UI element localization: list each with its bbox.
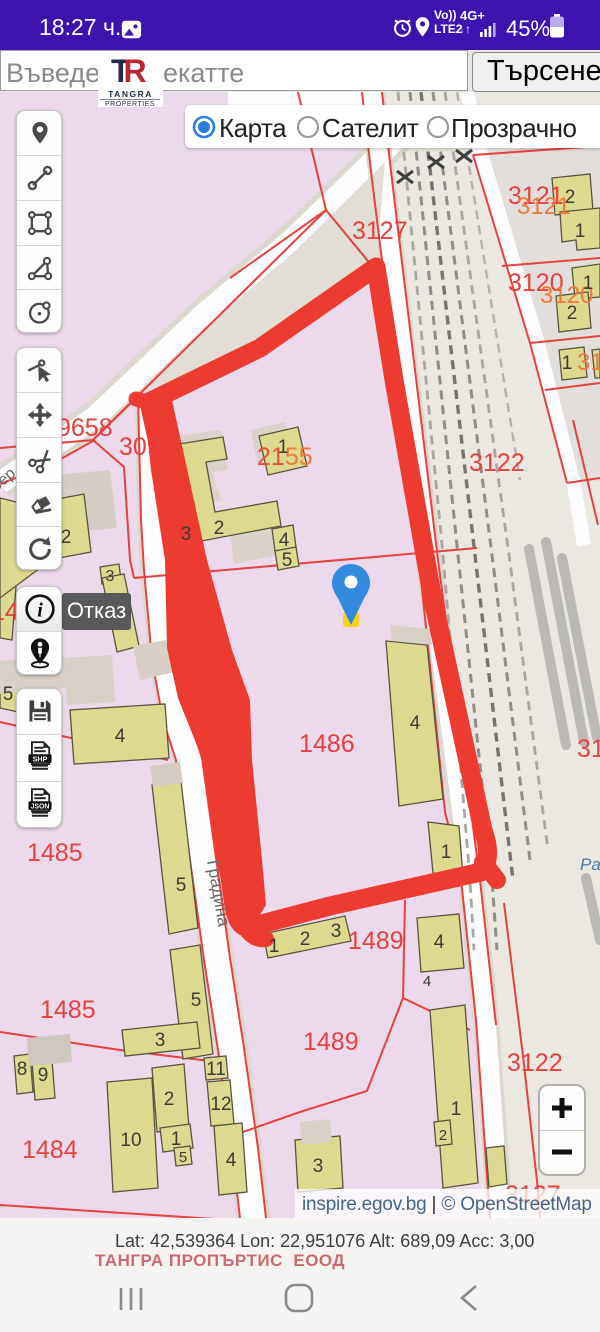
svg-text:1: 1 [278,437,289,458]
svg-text:12: 12 [210,1094,231,1115]
svg-text:9658: 9658 [57,414,113,442]
svg-text:2: 2 [439,1127,447,1144]
svg-text:1484: 1484 [22,1136,78,1164]
svg-text:1485: 1485 [40,996,96,1024]
svg-text:3121: 3121 [517,193,570,220]
svg-text:5: 5 [282,550,293,571]
svg-text:2: 2 [214,518,225,539]
svg-text:2: 2 [61,527,72,548]
svg-text:4: 4 [434,932,445,953]
svg-text:5: 5 [3,684,14,705]
svg-text:2: 2 [565,187,576,208]
svg-text:4: 4 [115,726,126,747]
svg-text:1489: 1489 [303,1028,359,1056]
svg-text:JSON: JSON [31,803,50,810]
svg-text:2: 2 [567,303,578,324]
svg-text:Ра: Ра [580,855,600,874]
svg-text:31: 31 [577,735,600,763]
svg-text:8: 8 [17,1059,28,1080]
svg-text:2: 2 [300,929,311,950]
svg-text:3: 3 [155,1030,166,1051]
svg-text:5: 5 [191,990,202,1011]
svg-text:3122: 3122 [507,1049,563,1077]
svg-text:1: 1 [171,1129,182,1150]
svg-text:1: 1 [269,936,280,957]
svg-text:11: 11 [206,1059,226,1080]
svg-text:1485: 1485 [27,839,83,867]
svg-text:9: 9 [38,1065,49,1086]
svg-text:SHP: SHP [33,755,48,763]
svg-text:3: 3 [181,524,192,545]
svg-text:5: 5 [179,1149,187,1166]
svg-text:3127: 3127 [352,217,408,245]
svg-text:2: 2 [164,1089,175,1110]
svg-text:4: 4 [279,530,290,551]
svg-text:3: 3 [106,568,115,585]
svg-text:5: 5 [176,875,187,896]
svg-text:3: 3 [313,1156,324,1177]
svg-text:4: 4 [226,1150,237,1171]
svg-text:4: 4 [410,713,421,734]
svg-text:3122: 3122 [469,449,525,477]
svg-text:i: i [37,599,43,621]
svg-text:1: 1 [575,221,586,242]
svg-text:1489: 1489 [348,927,404,955]
svg-text:31: 31 [577,349,600,376]
svg-text:1: 1 [583,273,594,294]
svg-text:1: 1 [451,1099,462,1120]
svg-text:3: 3 [331,921,342,942]
svg-text:309: 309 [119,433,161,461]
svg-text:1: 1 [562,353,573,374]
svg-text:1: 1 [441,842,452,863]
svg-text:10: 10 [120,1130,141,1151]
svg-text:1486: 1486 [299,730,355,758]
svg-text:4: 4 [423,973,431,990]
